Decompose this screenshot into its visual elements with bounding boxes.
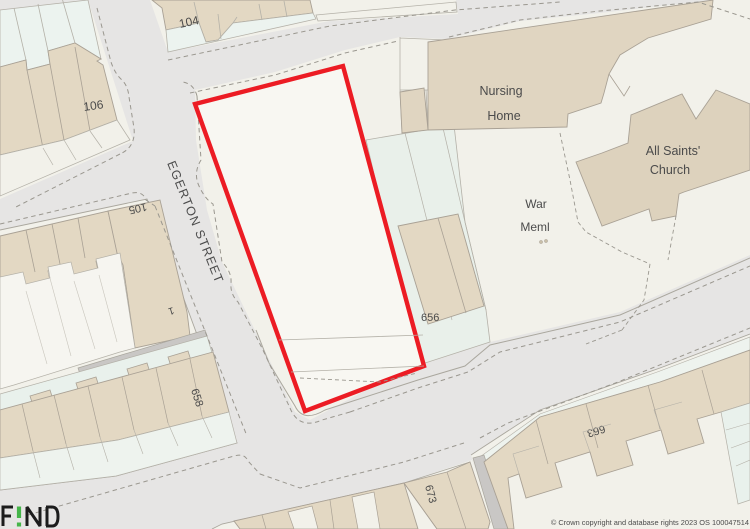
svg-text:Nursing: Nursing [479,84,522,98]
svg-text:© Crown copyright and database: © Crown copyright and database rights 20… [551,518,749,527]
svg-text:Meml: Meml [520,220,549,234]
svg-text:106: 106 [82,97,104,114]
svg-text:Church: Church [650,163,690,177]
svg-text:656: 656 [421,312,439,324]
svg-text:War: War [525,197,547,211]
svg-text:All Saints': All Saints' [646,144,701,158]
svg-text:Home: Home [487,109,520,123]
